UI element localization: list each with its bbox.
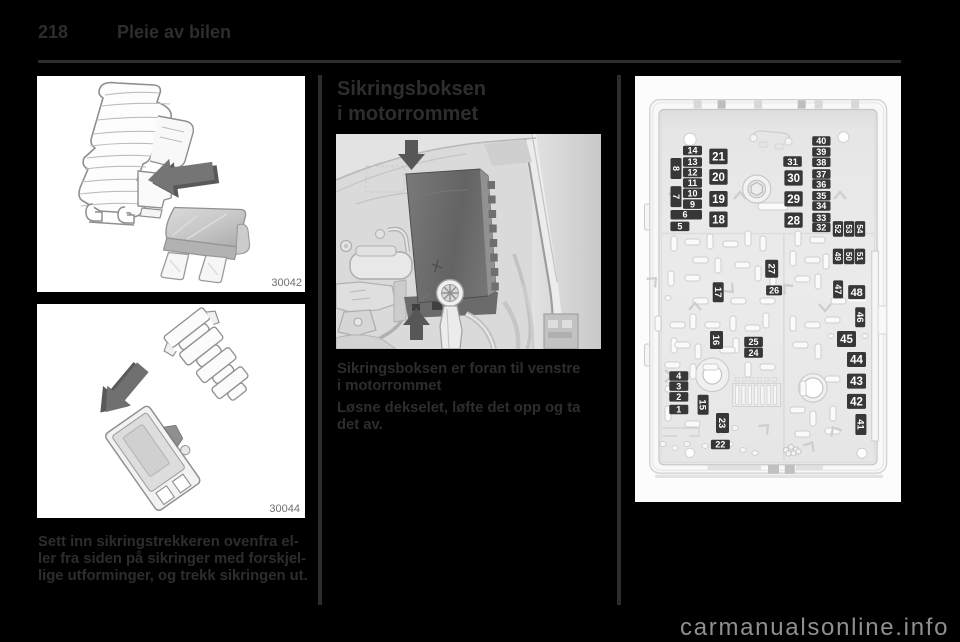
svg-text:41: 41 [855,419,866,430]
svg-text:37: 37 [816,169,826,179]
svg-text:33: 33 [816,213,826,223]
svg-text:48: 48 [851,287,863,299]
svg-text:27: 27 [765,264,776,275]
svg-text:46: 46 [854,312,865,323]
svg-text:29: 29 [787,194,800,206]
svg-text:30044: 30044 [269,503,300,515]
svg-text:40: 40 [816,136,826,146]
svg-text:42: 42 [850,397,863,409]
svg-text:45: 45 [840,334,853,346]
svg-text:1: 1 [676,405,681,415]
svg-text:26: 26 [769,286,779,296]
svg-text:15: 15 [697,399,708,410]
svg-text:50: 50 [844,252,853,262]
svg-text:52: 52 [833,224,842,234]
svg-text:12: 12 [687,168,697,178]
svg-text:47: 47 [833,284,843,294]
svg-text:14: 14 [687,146,697,156]
svg-text:24: 24 [748,348,758,358]
svg-text:39: 39 [816,147,826,157]
svg-text:28: 28 [787,215,800,227]
svg-text:51: 51 [855,252,864,262]
svg-text:9: 9 [690,199,695,209]
svg-text:19: 19 [712,194,725,206]
svg-text:6: 6 [682,209,687,219]
svg-text:23: 23 [716,418,727,429]
svg-text:10: 10 [687,189,697,199]
svg-text:20: 20 [712,172,725,184]
svg-text:3: 3 [676,381,681,391]
svg-text:5: 5 [677,222,682,232]
svg-text:43: 43 [850,376,863,388]
svg-text:30042: 30042 [271,277,302,289]
svg-text:16: 16 [710,335,721,346]
svg-text:18: 18 [712,214,725,226]
svg-text:4: 4 [676,371,681,381]
svg-text:8: 8 [671,166,681,171]
svg-text:35: 35 [816,191,826,201]
svg-text:44: 44 [850,355,863,367]
svg-text:21: 21 [712,152,725,164]
svg-text:11: 11 [688,178,698,188]
svg-text:25: 25 [748,337,758,347]
svg-text:7: 7 [671,194,681,199]
svg-text:36: 36 [816,179,826,189]
svg-text:54: 54 [855,224,864,234]
svg-text:17: 17 [712,287,723,298]
svg-text:13: 13 [687,157,697,167]
svg-text:38: 38 [816,158,826,168]
svg-text:31: 31 [787,157,798,168]
svg-text:30: 30 [787,173,800,185]
svg-text:34: 34 [816,201,826,211]
svg-text:2: 2 [676,392,681,402]
svg-text:49: 49 [833,252,842,262]
svg-text:22: 22 [715,440,725,450]
svg-text:32: 32 [816,223,826,233]
svg-text:53: 53 [844,224,853,234]
